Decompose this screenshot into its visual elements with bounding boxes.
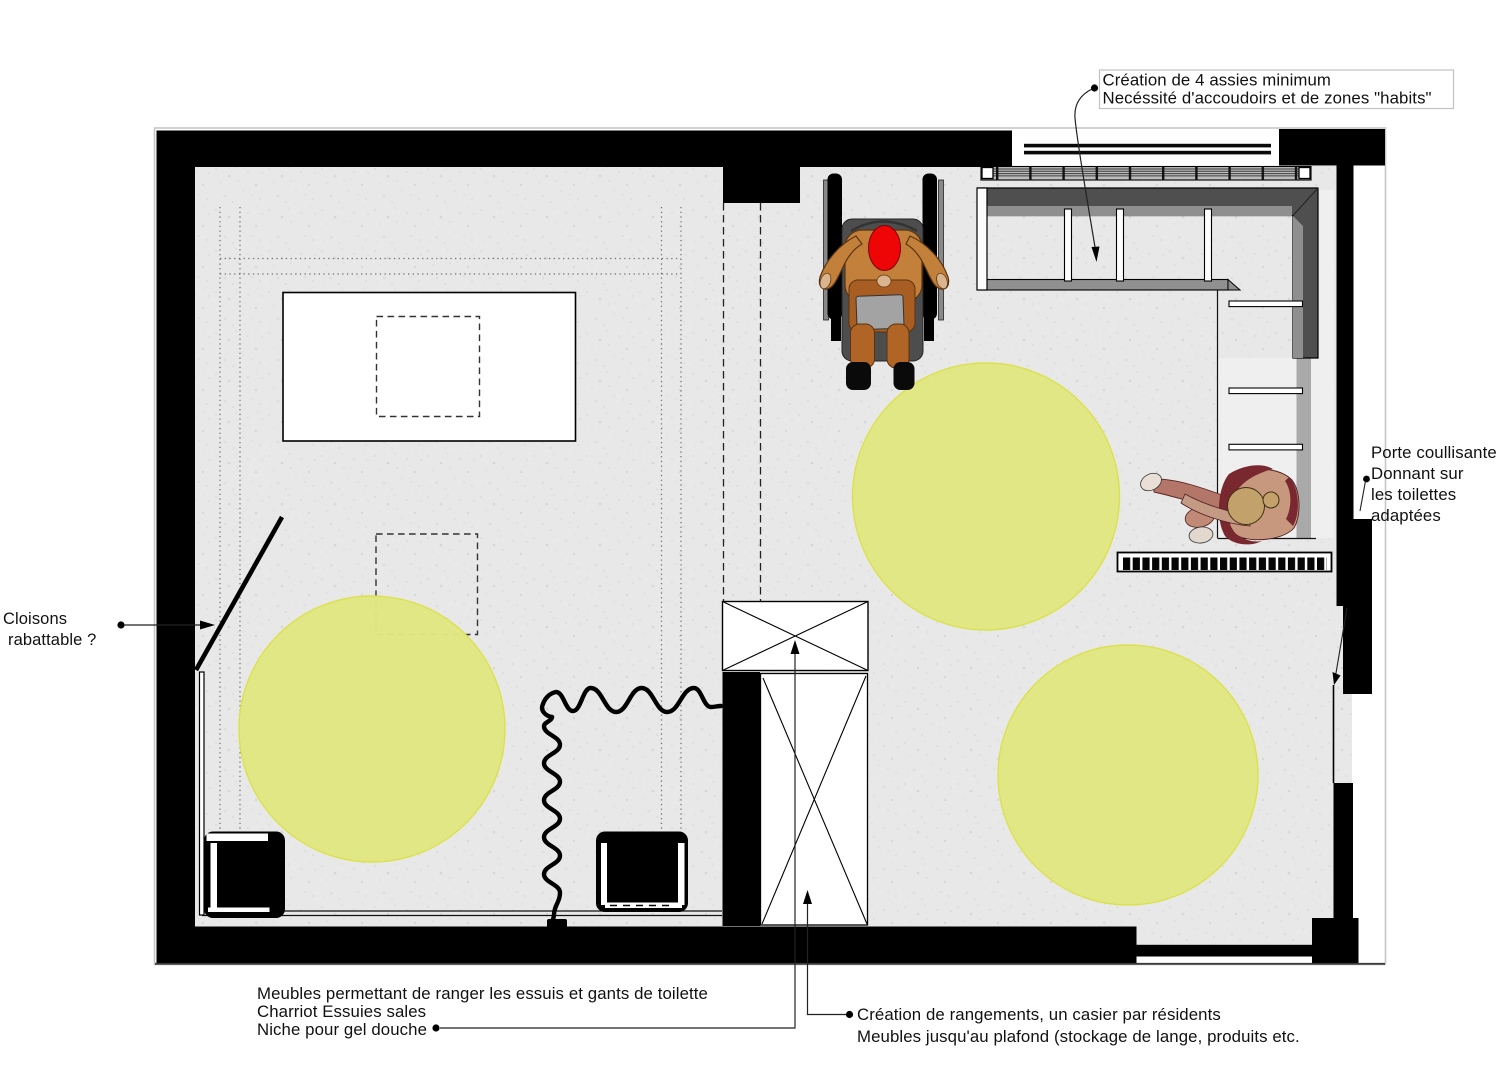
svg-text:Porte coullisante: Porte coullisante bbox=[1371, 443, 1497, 462]
svg-text:les toilettes: les toilettes bbox=[1371, 485, 1456, 504]
svg-text:Création de rangements, un cas: Création de rangements, un casier par ré… bbox=[857, 1005, 1221, 1024]
svg-text:rabattable ?: rabattable ? bbox=[8, 631, 96, 649]
svg-text:Création de 4 assies minimum: Création de 4 assies minimum bbox=[1103, 71, 1332, 90]
svg-text:Meubles permettant de ranger l: Meubles permettant de ranger les essuis … bbox=[257, 984, 708, 1003]
svg-text:Cloisons: Cloisons bbox=[3, 610, 67, 628]
svg-text:adaptées: adaptées bbox=[1371, 506, 1441, 525]
svg-text:Necéssité d'accoudoirs et de z: Necéssité d'accoudoirs et de zones "habi… bbox=[1103, 89, 1432, 108]
svg-text:Niche pour gel douche: Niche pour gel douche bbox=[257, 1020, 427, 1039]
svg-text:Meubles jusqu'au plafond (stoc: Meubles jusqu'au plafond (stockage de la… bbox=[857, 1027, 1300, 1046]
svg-text:Charriot Essuies sales: Charriot Essuies sales bbox=[257, 1002, 426, 1021]
svg-text:Donnant sur: Donnant sur bbox=[1371, 464, 1464, 483]
